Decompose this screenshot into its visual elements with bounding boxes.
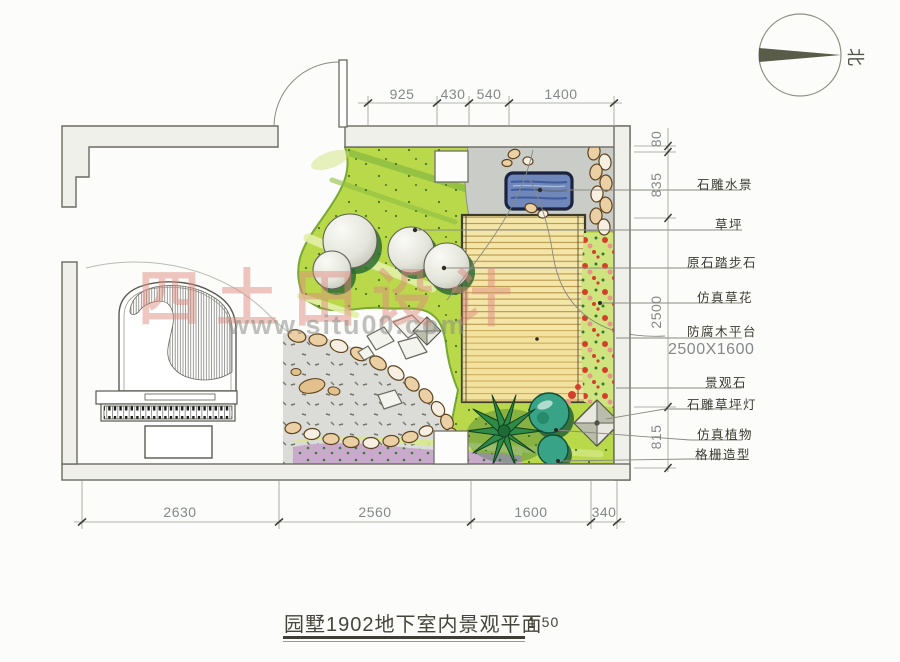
watermark-url: www.situ00.com [228,310,467,341]
dim-right-835: 835 [648,173,664,198]
label-stone-lawn-lamp: 石雕草坪灯 [687,394,757,413]
landscape-plan-sheet: 四土田设计 www.situ00.com 925 430 540 1400 26… [0,0,900,662]
north-label: 北 [843,48,869,66]
drawing-title: 园墅1902地下室内景观平面 [284,608,543,637]
dim-top-540: 540 [477,86,502,102]
dim-bottom-2560: 2560 [358,504,391,520]
title-underline [283,636,525,639]
dim-right-815: 815 [648,425,664,450]
piano-bench [145,426,212,458]
label-deck-size: 2500X1600 [668,341,754,359]
label-wood-deck: 防腐木平台 [687,321,757,340]
dim-top-925: 925 [390,86,415,102]
north-arrow [759,14,841,96]
dim-right-2500: 2500 [648,295,664,328]
north-needle [759,48,841,62]
dim-bottom-340: 340 [592,504,617,520]
label-artificial-flowers: 仿真草花 [697,287,753,306]
title-underline-thin [283,641,525,642]
label-stone-water-feature: 石雕水景 [697,174,753,193]
label-landscape-rock: 景观石 [705,372,747,391]
label-artificial-plants: 仿真植物 [697,424,753,443]
label-lawn: 草坪 [715,214,743,233]
dim-top-1400: 1400 [544,86,577,102]
dim-right-80: 80 [648,131,664,148]
label-stepping-stones: 原石踏步石 [687,252,757,271]
drawing-scale: 1:50 [528,614,559,630]
label-lattice-feature: 格栅造型 [695,444,751,463]
dim-top-430: 430 [441,86,466,102]
dim-bottom-1600: 1600 [514,504,547,520]
piano-keys [104,406,232,419]
entry-door [274,60,347,127]
dim-bottom-2630: 2630 [163,504,196,520]
